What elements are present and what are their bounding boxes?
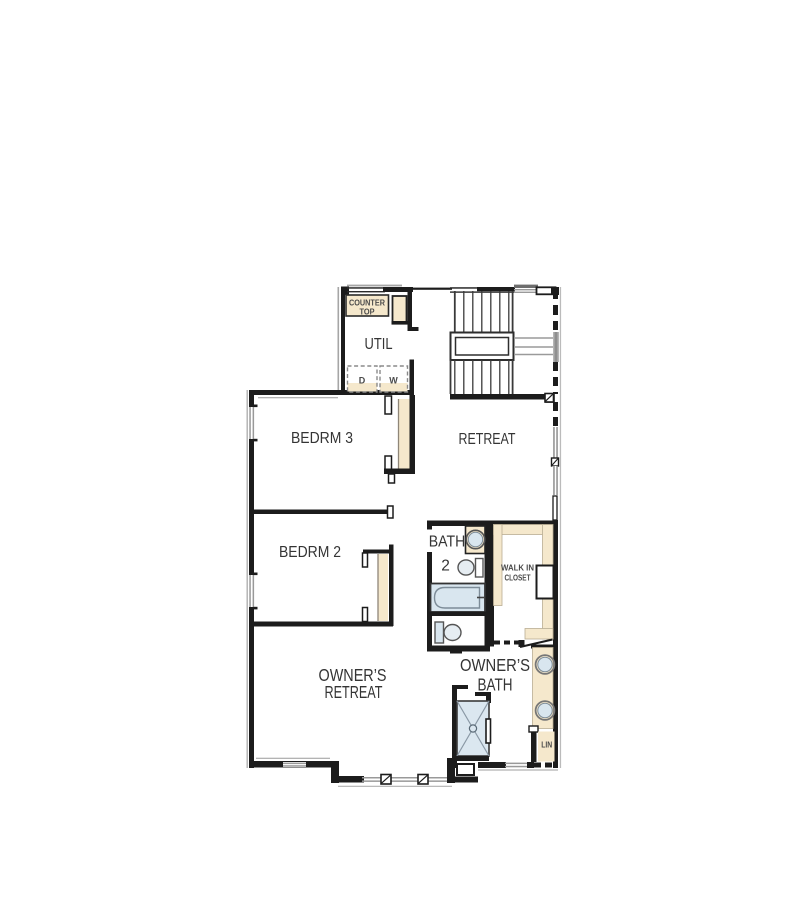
svg-text:W: W	[389, 376, 398, 386]
svg-text:WALK IN: WALK IN	[501, 564, 534, 573]
svg-text:BATH: BATH	[478, 675, 513, 695]
svg-text:RETREAT: RETREAT	[459, 431, 516, 448]
svg-text:COUNTER: COUNTER	[349, 299, 385, 308]
svg-text:OWNER’S: OWNER’S	[460, 655, 530, 675]
svg-text:RETREAT: RETREAT	[325, 682, 383, 702]
svg-text:TOP: TOP	[360, 308, 375, 317]
svg-text:BEDRM 2: BEDRM 2	[279, 544, 341, 561]
svg-text:LIN: LIN	[541, 741, 552, 750]
svg-text:UTIL: UTIL	[365, 336, 393, 353]
svg-text:BEDRM 3: BEDRM 3	[291, 430, 353, 447]
svg-text:CLOSET: CLOSET	[505, 574, 531, 583]
svg-text:2: 2	[441, 558, 450, 575]
svg-text:D: D	[359, 376, 366, 386]
svg-text:BATH: BATH	[429, 534, 466, 551]
